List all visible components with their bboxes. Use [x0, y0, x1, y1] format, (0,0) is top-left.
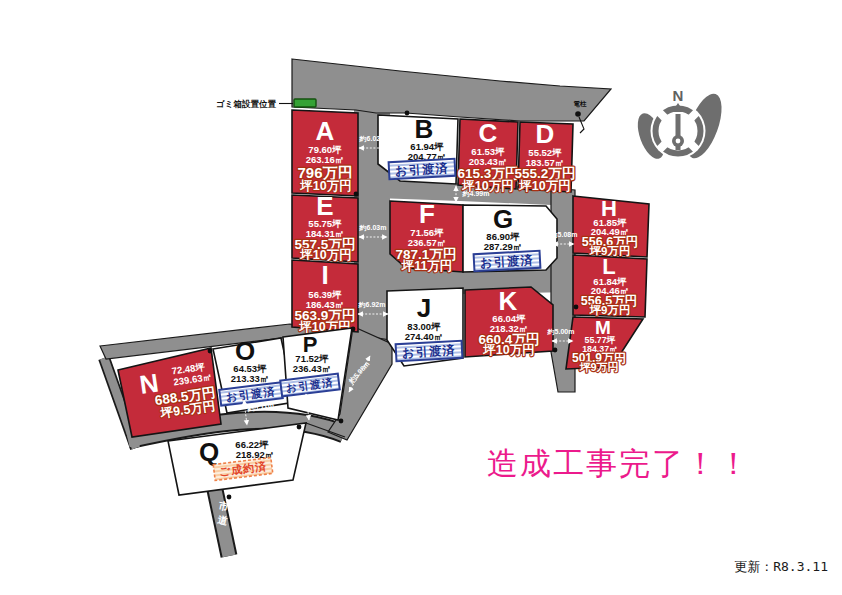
- plot-b-status-label: お引渡済: [395, 161, 450, 178]
- plot-b-letter: B: [415, 114, 434, 144]
- completion-banner: 造成工事完了！！: [487, 446, 751, 481]
- plot-d-letter: D: [536, 119, 555, 149]
- plot-o-letter: O: [235, 336, 255, 366]
- survey-point: [553, 348, 558, 353]
- plot-k: K 66.04坪 218.32㎡ 660.4万円 坪10万円: [465, 286, 553, 357]
- plot-b: B 61.94坪 204.77㎡ お引渡済: [378, 114, 458, 184]
- dimension-label-gh: 約5.08m: [550, 231, 578, 239]
- plot-c-letter: C: [479, 118, 498, 148]
- plot-c: C 61.53坪 203.43㎡ 615.3万円 坪10万円: [458, 118, 519, 193]
- trash-box-label: ゴミ箱設置位置: [216, 99, 276, 109]
- survey-point: [339, 419, 344, 424]
- plot-j-letter: J: [417, 293, 431, 323]
- survey-point: [405, 111, 410, 116]
- plot-d: D 55.52坪 183.57㎡ 555.2万円 坪10万円: [515, 119, 576, 193]
- utility-pole-label: 電柱: [574, 100, 588, 108]
- utility-pole-dot: [575, 111, 581, 117]
- plot-j-status-label: お引渡済: [402, 343, 457, 360]
- plot-g-area-sqm: 287.29㎡: [484, 241, 523, 252]
- dimension-label-ij: 約6.92m: [358, 301, 386, 309]
- subdivision-map-canvas: A 79.60坪 263.16㎡ 796万円 坪10万円 B 61.94坪 20…: [0, 0, 842, 595]
- plot-j-status-badge: お引渡済: [396, 341, 463, 361]
- survey-point: [574, 305, 579, 310]
- survey-point: [297, 425, 302, 430]
- plot-i-letter: I: [321, 260, 328, 290]
- trash-box-icon: [294, 99, 316, 107]
- dimension-label-ab: 約6.02m: [359, 135, 387, 143]
- compass-hub-center: [676, 139, 681, 144]
- plot-e: E 55.75坪 184.31㎡ 557.5万円 坪10万円: [292, 191, 358, 262]
- plot-q-letter: Q: [199, 437, 219, 467]
- survey-point: [351, 327, 356, 332]
- plot-l-unit-price: 坪9万円: [589, 304, 631, 316]
- plot-a: A 79.60坪 263.16㎡ 796万円 坪10万円: [292, 110, 358, 196]
- compass-north-label: N: [673, 87, 684, 104]
- trash-box-callout: ゴミ箱設置位置: [216, 99, 316, 109]
- dimension-label-km: 約5.00m: [547, 328, 575, 336]
- update-note: 更新：R8.3.11: [734, 559, 828, 574]
- plot-j: J 83.00坪 274.40㎡ お引渡済: [387, 288, 463, 366]
- plot-j-area-sqm: 274.40㎡: [405, 331, 444, 342]
- plot-f: F 71.56坪 236.57㎡ 787.1万円 坪11万円: [390, 199, 463, 273]
- plot-k-unit-price: 坪10万円: [482, 343, 534, 357]
- survey-point: [227, 495, 232, 500]
- plot-g: G 86.90坪 287.29㎡ お引渡済: [463, 204, 557, 272]
- plot-p-area-sqm: 236.43㎡: [293, 363, 332, 374]
- plot-o-area-sqm: 213.33㎡: [231, 373, 270, 384]
- compass-icon: N: [632, 87, 728, 163]
- plot-b-status-badge: お引渡済: [389, 159, 456, 179]
- plot-g-status-badge: お引渡済: [474, 251, 541, 271]
- plot-o: O 64.53坪 213.33㎡ お引渡済: [213, 336, 295, 413]
- plot-f-unit-price: 坪11万円: [401, 259, 453, 273]
- plot-n: N 72.48坪 239.63㎡ 688.5万円 坪9.5万円: [118, 348, 221, 437]
- plot-i: I 56.39坪 186.43㎡ 563.9万円 坪10万円: [292, 260, 358, 334]
- plot-g-letter: G: [493, 204, 513, 234]
- plot-k-letter: K: [499, 286, 518, 316]
- plot-h: H 61.85坪 204.49㎡ 556.6万円 坪9万円: [573, 196, 649, 257]
- plot-e-letter: E: [316, 191, 333, 221]
- plot-l: L 61.84坪 204.46㎡ 556.5万円 坪9万円: [573, 254, 647, 317]
- plot-a-letter: A: [316, 116, 335, 146]
- land-subdivision-map-page: A 79.60坪 263.16㎡ 796万円 坪10万円 B 61.94坪 20…: [0, 0, 842, 595]
- dimension-label-cg: 約4.99m: [462, 190, 490, 198]
- survey-point: [208, 349, 213, 354]
- plot-m: M 55.77坪 184.37㎡ 501.9万円 坪9万円: [566, 317, 643, 373]
- plot-g-status-label: お引渡済: [480, 253, 535, 270]
- plot-m-unit-price: 坪9万円: [578, 361, 618, 373]
- survey-point: [354, 192, 359, 197]
- plot-f-letter: F: [419, 199, 435, 229]
- dimension-label-ef: 約6.03m: [359, 224, 387, 232]
- plot-d-unit-price: 坪10万円: [518, 179, 570, 193]
